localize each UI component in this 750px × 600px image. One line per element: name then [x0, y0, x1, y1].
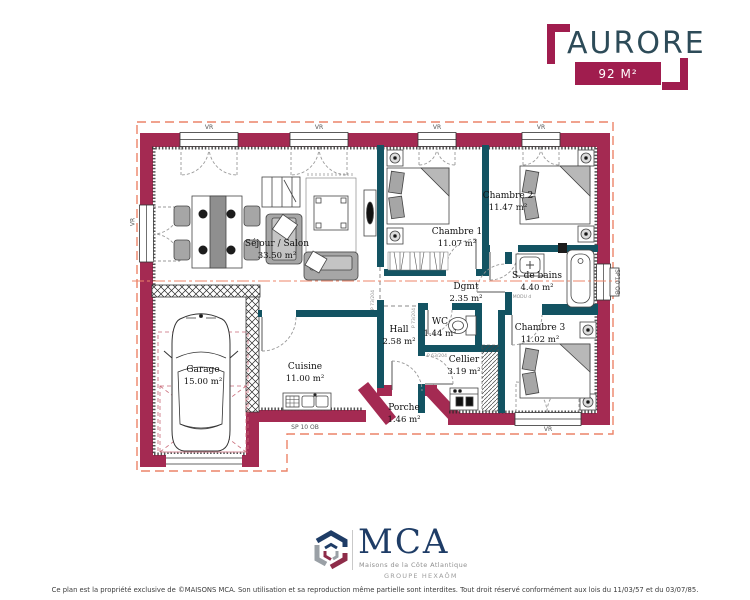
door-size-label: P 73/204: [411, 308, 416, 328]
living-furniture: [262, 173, 376, 280]
room-label-wc: WC1.44 m²: [423, 316, 456, 340]
mca-hexagon-icon: [312, 528, 350, 572]
room-label-dgmt: Dgmt2.35 m²: [449, 281, 482, 305]
room-label-garage: Garage15.00 m²: [184, 364, 223, 388]
room-label-chambre2: Chambre 211.47 m²: [483, 190, 534, 214]
room-label-sejour: Séjour / Salon33.50 m²: [245, 238, 309, 262]
copyright-disclaimer: Ce plan est la propriété exclusive de ©M…: [25, 586, 725, 594]
window-label: VR: [544, 426, 552, 433]
door-size-label: P 63/204: [427, 353, 447, 358]
room-label-porche: Porche1.46 m²: [387, 402, 420, 426]
mca-logo: MCA Maisons de la Côte Atlantique GROUPE…: [312, 528, 502, 580]
model-name: AURORE: [567, 26, 706, 61]
bracket-bottom-right-arm: [662, 82, 688, 90]
logo-divider: [352, 530, 353, 570]
logo-group-name: GROUPE HEXAÔM: [384, 572, 458, 580]
plan-sheet: Séjour / Salon33.50 m² Chambre 111.07 m²…: [0, 0, 750, 600]
room-label-sdb: S. de bains4.40 m²: [512, 270, 562, 294]
room-label-chambre1: Chambre 111.07 m²: [432, 226, 483, 250]
window-label: VR: [315, 124, 323, 131]
window-label: VR: [130, 218, 137, 226]
window-label: SP 10 OB: [291, 424, 319, 431]
bedroom1-furniture: [387, 150, 449, 270]
kitchen-counter: [283, 393, 331, 410]
door-size-label: P 73/204: [370, 290, 375, 310]
room-label-chambre3: Chambre 311.02 m²: [515, 322, 566, 346]
window-label: SP10 OB: [614, 269, 621, 295]
wall-pier: [558, 243, 567, 253]
room-label-cuisine: Cuisine11.00 m²: [286, 361, 325, 385]
logo-wordmark: MCA: [358, 522, 449, 562]
cellier-appliances: [450, 388, 478, 410]
logo-tagline: Maisons de la Côte Atlantique: [359, 561, 468, 569]
shaft-hatch: [482, 345, 498, 411]
window-label: VR: [205, 124, 213, 131]
window-label: VR: [537, 124, 545, 131]
model-area-badge: 92 M²: [575, 62, 661, 85]
door-size-label: MODU d: [513, 294, 531, 299]
room-label-cellier: Cellier3.19 m²: [447, 354, 480, 378]
model-title-block: AURORE 92 M²: [547, 18, 692, 96]
window-label: VR: [433, 124, 441, 131]
